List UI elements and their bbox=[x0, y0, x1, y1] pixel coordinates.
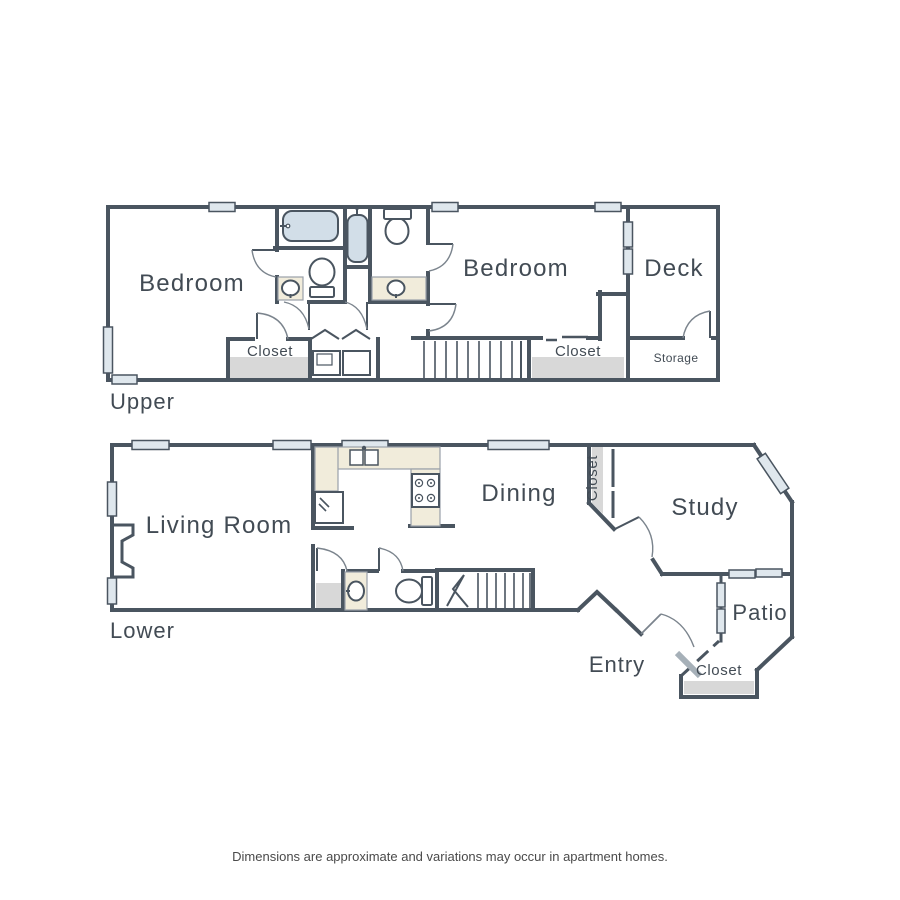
room-label-patio: Patio bbox=[732, 600, 787, 625]
upper-right-closet-floor bbox=[532, 357, 624, 378]
room-label-closet-entry: Closet bbox=[696, 662, 742, 679]
stove bbox=[412, 474, 439, 507]
disclaimer-text: Dimensions are approximate and variation… bbox=[0, 849, 900, 864]
room-label-entry: Entry bbox=[589, 652, 645, 677]
entry-closet-floor bbox=[684, 681, 754, 694]
bath2-toilet bbox=[384, 209, 411, 244]
refrigerator bbox=[315, 492, 343, 523]
bath1-toilet bbox=[310, 259, 335, 298]
room-label-bedroom-left: Bedroom bbox=[139, 270, 245, 297]
kitchen bbox=[315, 446, 440, 526]
upper-floor-label: Upper bbox=[110, 389, 175, 414]
bathtub bbox=[280, 211, 338, 241]
shower bbox=[348, 206, 368, 262]
powder-toilet bbox=[396, 577, 432, 605]
room-label-living-room: Living Room bbox=[146, 512, 293, 539]
bath2-sink bbox=[372, 277, 426, 300]
powder-room bbox=[345, 572, 432, 610]
room-label-dining: Dining bbox=[481, 480, 556, 507]
washer bbox=[313, 351, 340, 375]
dryer bbox=[343, 351, 370, 375]
lower-stairs bbox=[447, 573, 530, 608]
room-label-storage: Storage bbox=[654, 351, 699, 365]
fireplace bbox=[112, 525, 133, 577]
lower-floor: Living Room Dining Study Patio Entry Clo… bbox=[108, 441, 793, 698]
hall-closet-floor bbox=[316, 583, 341, 608]
lower-floor-label: Lower bbox=[110, 618, 175, 643]
kitchen-counter-left bbox=[315, 447, 338, 491]
bath1-sink bbox=[278, 277, 303, 300]
floorplan-drawing: Bedroom Bedroom Deck Closet Closet Stora… bbox=[0, 0, 900, 900]
room-label-deck: Deck bbox=[644, 255, 703, 282]
upper-floor: Bedroom Bedroom Deck Closet Closet Stora… bbox=[104, 203, 719, 415]
stair-direction-arrow bbox=[447, 575, 468, 607]
room-label-closet-upper-right: Closet bbox=[555, 343, 601, 360]
room-label-bedroom-right: Bedroom bbox=[463, 255, 569, 282]
room-label-closet-dining: Closet bbox=[584, 455, 601, 501]
upper-left-closet-floor bbox=[230, 357, 308, 378]
powder-sink bbox=[348, 582, 364, 601]
room-label-study: Study bbox=[671, 494, 738, 521]
upper-stairs bbox=[424, 341, 521, 378]
room-label-closet-upper-left: Closet bbox=[247, 343, 293, 360]
floorplan-page: Bedroom Bedroom Deck Closet Closet Stora… bbox=[0, 0, 900, 900]
entry-door-jamb bbox=[641, 614, 661, 634]
